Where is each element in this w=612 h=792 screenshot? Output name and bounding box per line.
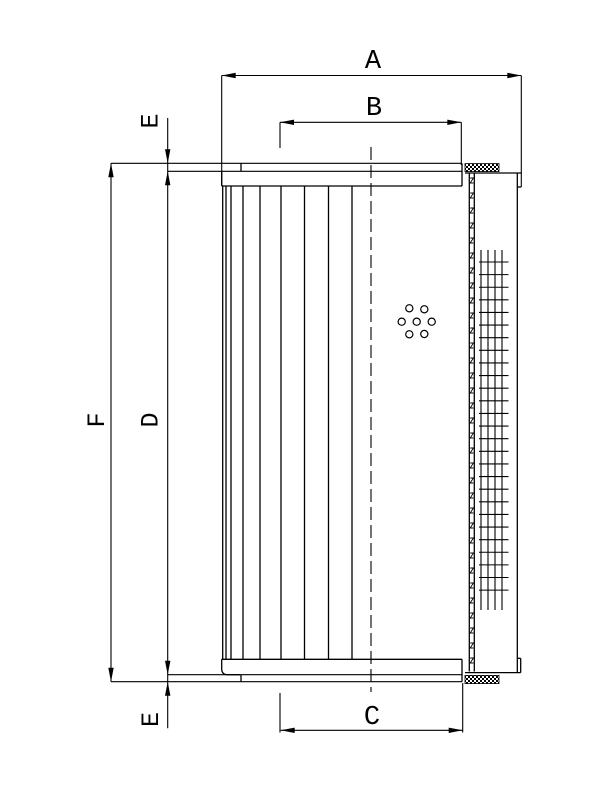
- arrow-down-icon: [165, 661, 170, 675]
- shell-side-view: [465, 164, 521, 684]
- dim-label-d: D: [137, 412, 166, 427]
- seam-strip: [469, 174, 474, 672]
- knurled-seal-top: [465, 164, 499, 172]
- arrow-right-icon: [507, 73, 521, 78]
- arrow-up-icon: [108, 163, 113, 177]
- dim-label-e-bottom: E: [137, 712, 166, 727]
- dim-label-a: A: [365, 47, 382, 77]
- dimension-annotations: A B C F: [83, 47, 521, 733]
- seam-marks: [470, 178, 473, 663]
- top-end-cap: [222, 163, 462, 186]
- arrow-up-icon: [165, 171, 170, 185]
- arrow-right-icon: [449, 728, 463, 733]
- element-section-view: [222, 147, 462, 692]
- dim-label-b: B: [366, 94, 382, 124]
- pleated-media: [223, 186, 352, 659]
- arrow-down-icon: [108, 668, 113, 682]
- dimension-f: F: [83, 163, 114, 681]
- arrow-up-icon: [165, 682, 170, 696]
- arrow-left-icon: [280, 120, 294, 125]
- bottom-end-cap: [222, 659, 462, 681]
- arrow-down-icon: [165, 149, 170, 163]
- knurled-seal-bottom: [465, 675, 499, 683]
- arrow-left-icon: [222, 73, 236, 78]
- arrow-right-icon: [447, 120, 461, 125]
- technical-drawing-page: A B C F: [0, 0, 612, 792]
- arrow-left-icon: [281, 728, 295, 733]
- dim-label-e-top: E: [137, 113, 166, 128]
- perforation-holes: [398, 305, 435, 338]
- filter-element-drawing: A B C F: [0, 0, 612, 792]
- dim-label-c: C: [364, 703, 380, 733]
- dim-label-f: F: [83, 412, 112, 427]
- dimension-d-e: E D E: [137, 113, 171, 728]
- wire-mesh: [479, 250, 509, 610]
